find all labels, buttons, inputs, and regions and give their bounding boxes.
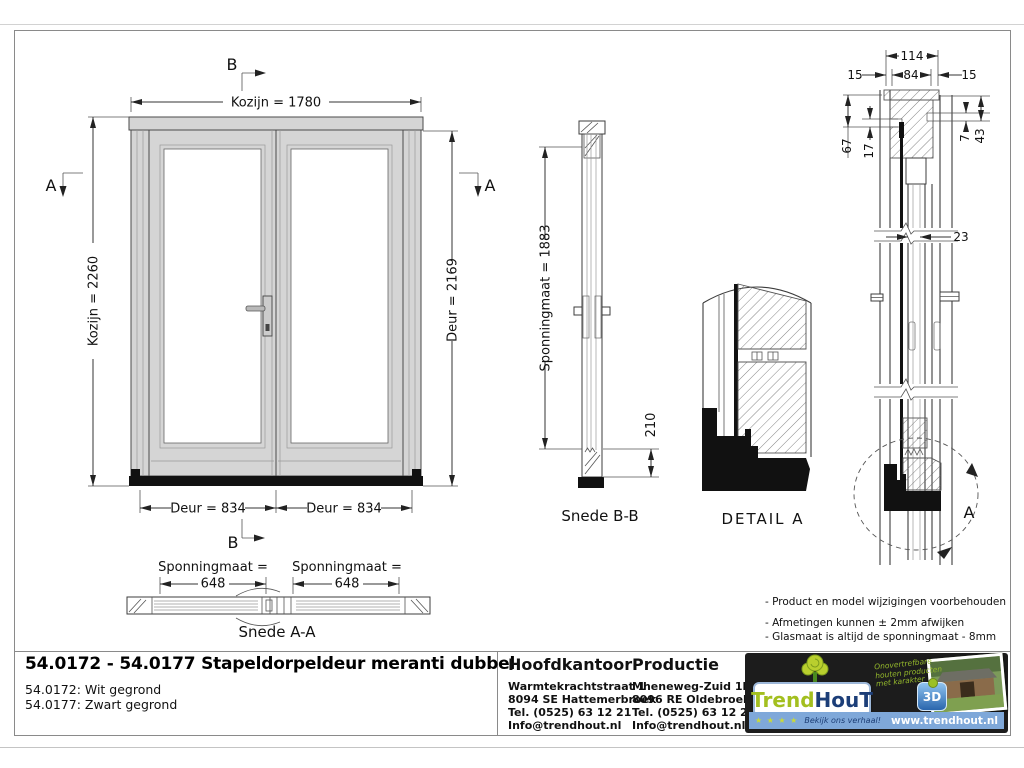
productie-column: Productie Mheneweg-Zuid 1b 8096 RE Oldeb… (632, 655, 755, 732)
frame-jamb-left (131, 130, 149, 476)
dim-15-right: 15 (961, 68, 976, 82)
website-link[interactable]: www.trendhout.nl (891, 715, 998, 727)
section-b-b: Sponningmaat = 1883 210 Snede B-B (538, 121, 659, 525)
technical-drawing: Kozijn = 1780 B A A Kozijn = 2260 Deur =… (14, 30, 1010, 651)
weather-strip-long (900, 126, 903, 487)
detail-a: DETAIL A (702, 284, 811, 528)
page-top-rule (0, 24, 1024, 25)
mini-tree-icon (928, 678, 938, 688)
brand-hout: HouT (815, 688, 873, 712)
rating-stars-icon: ★ ★ ★ ★ (755, 716, 798, 725)
door-handle-lever (246, 306, 265, 311)
threshold-sill (129, 476, 423, 486)
dim-114: 114 (901, 49, 924, 63)
dim-sponningmaat-height: Sponningmaat = 1883 (539, 225, 554, 372)
dim-84: 84 (903, 68, 918, 82)
drawing-title: 54.0172 - 54.0177 Stapeldorpeldeur meran… (25, 654, 515, 674)
glass-left (164, 149, 261, 443)
dim-kozijn-height: Kozijn = 2260 (87, 256, 102, 346)
variant-zwart: 54.0177: Zwart gegrond (25, 697, 177, 712)
dim-17: 17 (862, 143, 876, 158)
section-marker-a-left: A (46, 176, 57, 195)
page-bottom-rule (0, 747, 1024, 748)
dim-sponningmaat-left-value: 648 (201, 577, 226, 592)
dim-sponningmaat-right-value: 648 (335, 577, 360, 592)
horizontal-section-bar (127, 597, 430, 614)
productie-address-2: 8096 RE Oldebroek (632, 693, 755, 706)
notes: - Product en model wijzigingen voorbehou… (765, 596, 1006, 643)
variant-wit: 54.0172: Wit gegrond (25, 682, 161, 697)
caption-snede-aa: Snede A-A (238, 623, 316, 641)
weather-strip (734, 284, 738, 442)
dim-sponningmaat-left-label: Sponningmaat = (158, 560, 268, 575)
productie-email[interactable]: Info@trendhout.nl (632, 719, 755, 732)
photo-door (960, 682, 975, 697)
detail-marker-a: A (964, 503, 975, 522)
titleblock-divider (14, 651, 1010, 652)
dim-43: 43 (973, 128, 987, 143)
dim-7: 7 (958, 134, 972, 142)
brand-trend: Trend (751, 688, 814, 712)
trendhout-logo: TrendHouT Onovertrefbare houten producte… (745, 653, 1008, 733)
dim-deur-width-left: Deur = 834 (170, 502, 246, 517)
logo-bottom-bar: ★ ★ ★ ★ Bekijk ons verhaal! www.trendhou… (749, 712, 1004, 729)
logo-slogan: Bekijk ons verhaal! (804, 716, 881, 725)
caption-snede-bb: Snede B-B (561, 507, 638, 525)
dim-210: 210 (644, 413, 659, 438)
dim-deur-height: Deur = 2169 (446, 258, 461, 342)
badge-3d-icon: 3D (917, 682, 947, 711)
vertical-section-bar (582, 122, 602, 477)
front-view: Kozijn = 1780 B A A Kozijn = 2260 Deur =… (46, 55, 496, 552)
dim-kozijn-width: Kozijn = 1780 (231, 96, 321, 111)
note-line-2: - Afmetingen kunnen ± 2mm afwijken (765, 617, 964, 629)
section-sill (578, 477, 604, 488)
caption-detail-a: DETAIL A (721, 510, 804, 528)
dim-deur-width-right: Deur = 834 (306, 502, 382, 517)
dim-67: 67 (840, 138, 854, 153)
section-marker-b-top: B (227, 55, 238, 74)
note-line-3: - Glasmaat is altijd de sponningmaat - 8… (765, 631, 996, 643)
dim-15-left: 15 (847, 68, 862, 82)
profile-section: A 114 84 15 15 67 17 7 (840, 49, 990, 565)
section-marker-a-right: A (485, 176, 496, 195)
door-lock-cylinder (266, 324, 270, 331)
dim-sponningmaat-right-label: Sponningmaat = (292, 560, 402, 575)
productie-phone: Tel. (0525) 63 12 21 (632, 706, 755, 719)
productie-address-1: Mheneweg-Zuid 1b (632, 680, 755, 693)
section-a-a: Sponningmaat = Sponningmaat = 648 648 Sn… (127, 560, 430, 641)
drawing-sheet: Kozijn = 1780 B A A Kozijn = 2260 Deur =… (0, 0, 1024, 768)
glass-right (291, 149, 388, 443)
productie-heading: Productie (632, 655, 755, 674)
note-line-1: - Product en model wijzigingen voorbehou… (765, 596, 1006, 608)
head-cap (884, 90, 939, 100)
frame-jamb-right (403, 130, 421, 476)
frame-head (129, 117, 423, 130)
badge-3d-label: 3D (923, 690, 941, 704)
head-profile (890, 100, 933, 158)
dim-23: 23 (953, 230, 968, 244)
section-marker-b-bottom: B (228, 533, 239, 552)
